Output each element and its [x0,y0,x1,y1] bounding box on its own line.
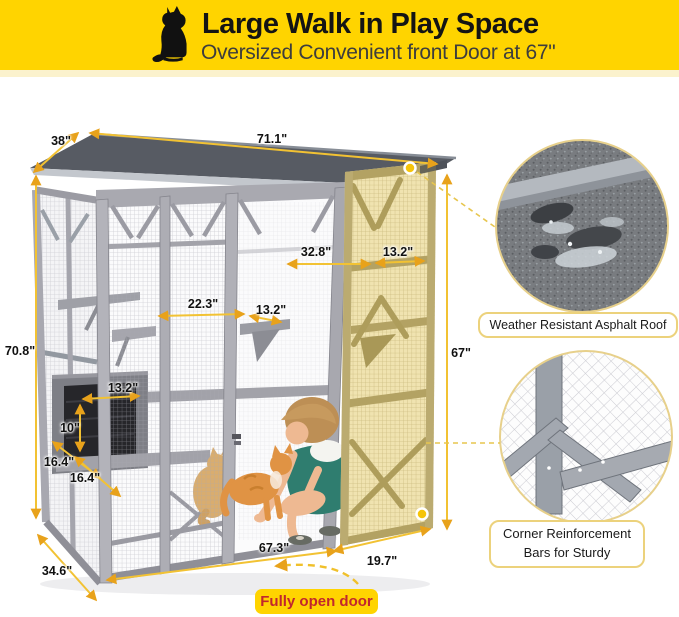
product-infographic: Large Walk in Play Space Oversized Conve… [0,0,679,617]
banner-subtitle: Oversized Convenient front Door at 67" [201,41,555,65]
dim-label-shelf-gap-right: 32.8" [301,245,331,259]
open-front-door [340,160,447,546]
cat-icon [150,5,196,67]
catio-enclosure [30,134,456,595]
fully-open-door-tag: Fully open door [255,589,378,614]
dim-label-roof-depth: 38" [51,134,71,148]
dim-label-overall-height: 70.8" [5,344,35,358]
dim-label-lower-shelf-a: 16.4" [44,455,74,469]
dim-label-base-width: 67.3" [259,541,289,555]
roof-callout-label: Weather Resistant Asphalt Roof [478,312,678,338]
dim-label-roof-width: 71.1" [257,132,287,146]
dim-label-door-shelf-width: 13.2" [383,245,413,259]
dim-label-base-depth: 34.6" [42,564,72,578]
dim-label-lower-shelf-b: 16.4" [70,471,100,485]
roof-callout-circle [496,140,679,313]
banner-title: Large Walk in Play Space [202,8,539,41]
corner-callout-circle [493,351,679,524]
dim-label-shelf-gap-mid: 22.3" [188,297,218,311]
dim-label-house-shelf-width: 13.2" [108,381,138,395]
top-banner: Large Walk in Play Space Oversized Conve… [0,0,679,70]
dim-label-door-height: 67" [451,346,471,360]
dim-label-door-bottom-width: 19.7" [367,554,397,568]
dim-label-house-height: 10" [60,421,80,435]
corner-callout-label: Corner Reinforcement Bars for Sturdy [489,520,645,568]
banner-fade-strip [0,70,679,77]
dim-label-mid-shelf-width: 13.2" [256,303,286,317]
